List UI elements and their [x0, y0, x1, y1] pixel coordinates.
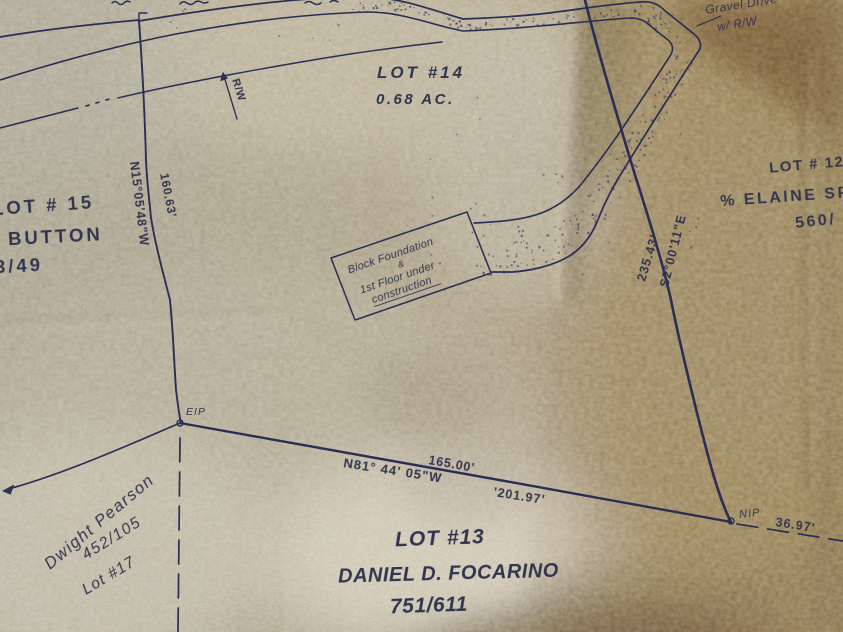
- svg-text:NIP: NIP: [739, 507, 761, 521]
- svg-text:3/49: 3/49: [0, 254, 44, 277]
- svg-text:LOT #14: LOT #14: [377, 63, 465, 82]
- svg-text:0.68 AC.: 0.68 AC.: [376, 91, 455, 108]
- svg-text:LOT #13: LOT #13: [395, 525, 486, 551]
- svg-text:751/611: 751/611: [390, 593, 469, 619]
- svg-text:EIP: EIP: [186, 406, 206, 418]
